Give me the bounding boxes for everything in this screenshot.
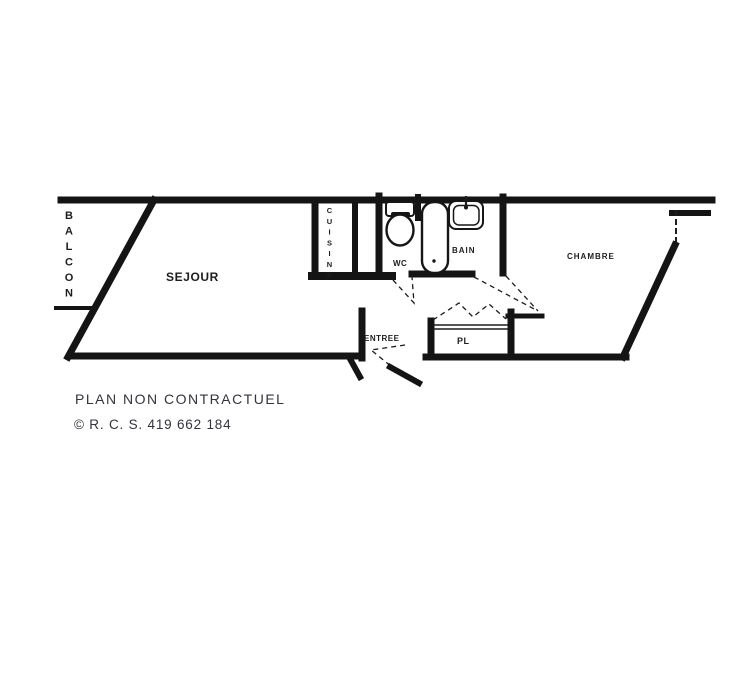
room-label-wc: WC xyxy=(393,259,407,268)
room-label-chambre: CHAMBRE xyxy=(567,252,615,261)
room-label-sejour: SEJOUR xyxy=(166,270,219,284)
wc-door-swing xyxy=(393,277,414,303)
toilet-bowl xyxy=(387,215,414,246)
wall-entree-stub xyxy=(349,357,360,377)
bathtub-drain xyxy=(432,259,435,262)
room-label-cuisine: CUISINE xyxy=(325,206,334,282)
sink-faucet-dot xyxy=(464,206,468,210)
toilet-icon xyxy=(386,202,414,246)
plan-disclaimer: PLAN NON CONTRACTUEL xyxy=(75,391,285,407)
room-label-balcon: BALCON xyxy=(63,210,75,303)
bain-door-swing xyxy=(474,277,536,310)
walls xyxy=(56,196,712,377)
sink-icon xyxy=(449,196,483,229)
pl-folding-door xyxy=(433,303,508,329)
entry-door-leaf xyxy=(390,367,419,383)
floor-plan: BALCON SEJOUR CUISINE WC BAIN CHAMBRE EN… xyxy=(0,0,755,700)
wall-chambre-slant xyxy=(623,245,675,357)
pl-door-zigzag xyxy=(433,303,506,320)
plan-rcs-number: © R. C. S. 419 662 184 xyxy=(74,417,231,432)
room-label-entree: ENTREE xyxy=(364,334,399,343)
bathtub-icon xyxy=(422,202,448,273)
floor-plan-page: BALCON SEJOUR CUISINE WC BAIN CHAMBRE EN… xyxy=(0,0,755,700)
floor-plan-drawing xyxy=(0,0,755,700)
room-label-pl: PL xyxy=(457,336,470,346)
chambre-door-swing xyxy=(506,276,538,311)
entry-door-swing xyxy=(371,345,405,367)
wall-balcon-slant xyxy=(68,200,154,357)
room-label-bain: BAIN xyxy=(452,246,476,255)
